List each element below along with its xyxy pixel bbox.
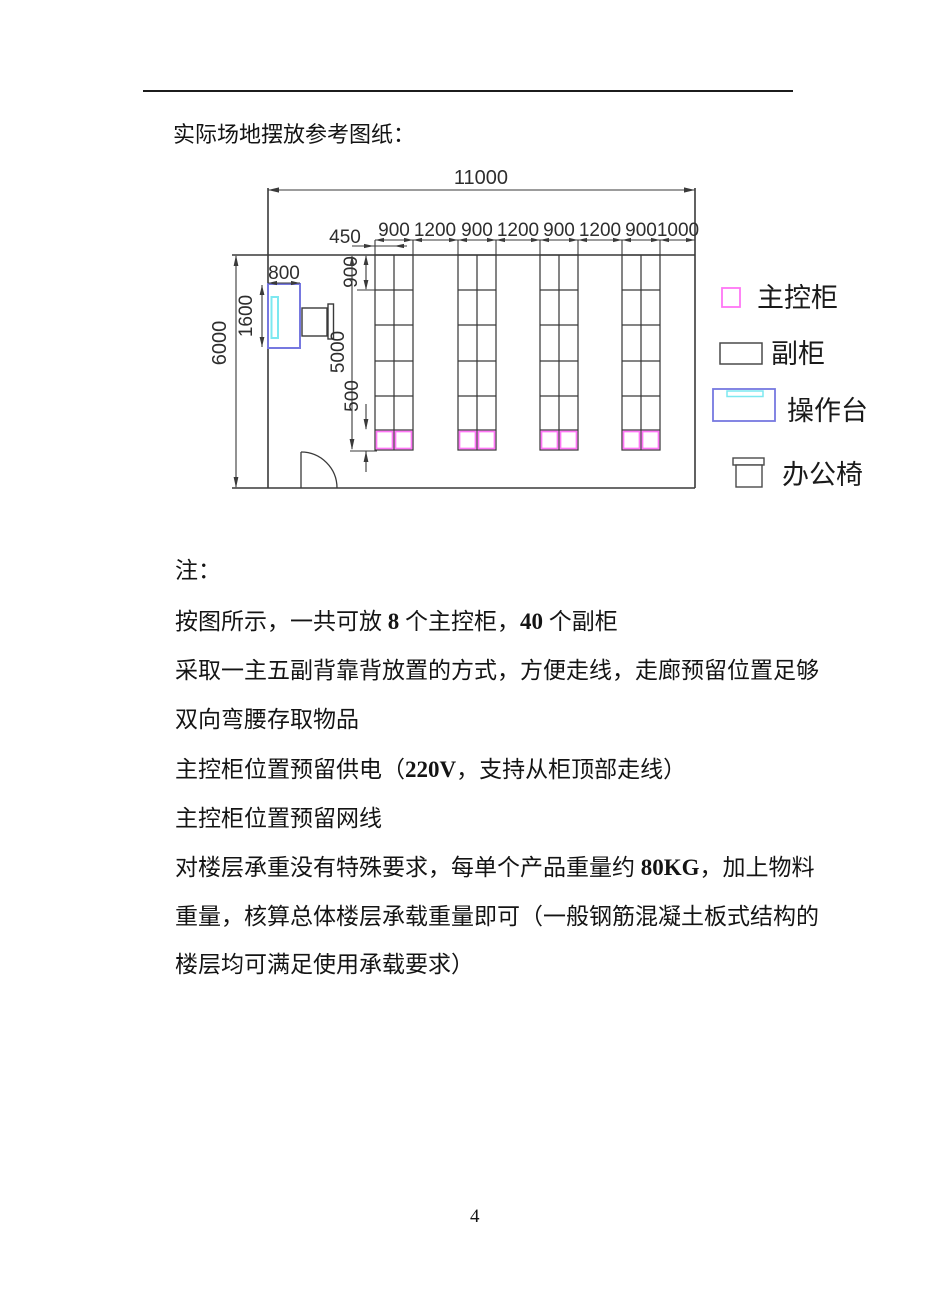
console-screen bbox=[272, 297, 279, 338]
svg-text:500: 500 bbox=[342, 380, 363, 412]
note-line-2: 采取一主五副背靠背放置的方式，方便走线，走廊预留位置足够 bbox=[175, 658, 819, 684]
legend: 主控柜 副柜 操作台 办公椅 bbox=[713, 283, 868, 490]
legend-item-chair: 办公椅 bbox=[733, 458, 863, 490]
note-line-1: 按图所示，一共可放 8 个主控柜，40 个副柜 bbox=[175, 609, 618, 635]
legend-label-console: 操作台 bbox=[787, 396, 868, 426]
note-line-7: 重量，核算总体楼层承载重量即可（一般钢筋混凝土板式结构的 bbox=[175, 904, 819, 930]
rack-column-4 bbox=[622, 240, 660, 450]
svg-text:1600: 1600 bbox=[236, 295, 257, 337]
legend-label-chair: 办公椅 bbox=[782, 460, 863, 490]
dim-overall-width: 11000 bbox=[268, 167, 695, 193]
aux-cabinet-swatch bbox=[720, 343, 762, 364]
note-line-6: 对楼层承重没有特殊要求，每单个产品重量约 80KG，加上物料 bbox=[175, 855, 815, 881]
dim-desk-length: 1600 bbox=[236, 285, 264, 347]
svg-text:5000: 5000 bbox=[328, 331, 349, 373]
dim-room-depth: 6000 bbox=[209, 255, 238, 488]
document-page: 实际场地摆放参考图纸： bbox=[0, 0, 930, 1316]
svg-text:1000: 1000 bbox=[657, 220, 699, 241]
chair-swatch-seat bbox=[736, 465, 762, 487]
dim-main-cabinet-row: 500 bbox=[342, 380, 377, 472]
legend-item-aux-cabinet: 副柜 bbox=[720, 339, 825, 369]
note-line-8: 楼层均可满足使用承载要求） bbox=[175, 952, 474, 978]
dim-first-rack-row: 900 bbox=[341, 255, 375, 290]
notes-heading: 注： bbox=[175, 558, 221, 584]
svg-text:450: 450 bbox=[329, 227, 361, 248]
main-cabinet-swatch bbox=[722, 288, 740, 307]
chair-swatch-back bbox=[733, 458, 764, 465]
operator-console bbox=[268, 284, 300, 348]
svg-text:900: 900 bbox=[543, 220, 575, 241]
note-line-5: 主控柜位置预留网线 bbox=[175, 806, 382, 832]
svg-text:900: 900 bbox=[378, 220, 410, 241]
dim-desk-width: 800 bbox=[268, 263, 300, 285]
legend-label-main-cabinet: 主控柜 bbox=[757, 283, 838, 313]
svg-text:800: 800 bbox=[268, 263, 300, 284]
svg-text:900: 900 bbox=[625, 220, 657, 241]
legend-label-aux-cabinet: 副柜 bbox=[771, 339, 825, 369]
legend-item-main-cabinet: 主控柜 bbox=[722, 283, 838, 313]
svg-text:11000: 11000 bbox=[454, 167, 508, 189]
console-screen-swatch bbox=[727, 391, 763, 397]
svg-text:1200: 1200 bbox=[497, 220, 539, 241]
svg-text:900: 900 bbox=[461, 220, 493, 241]
door-swing bbox=[301, 452, 337, 488]
floor-plan-diagram: 11000 900 1200 900 1200 900 1200 900 100… bbox=[0, 0, 930, 540]
notes-heading-text: 注： bbox=[175, 558, 221, 583]
svg-text:1200: 1200 bbox=[414, 220, 456, 241]
rack-column-3 bbox=[540, 240, 578, 450]
rack-column-1 bbox=[375, 240, 413, 450]
legend-item-console: 操作台 bbox=[713, 389, 868, 426]
note-line-3: 双向弯腰存取物品 bbox=[175, 707, 359, 733]
rack-column-2 bbox=[458, 240, 496, 450]
note-line-4: 主控柜位置预留供电（220V，支持从柜顶部走线） bbox=[175, 757, 686, 783]
dim-top-chain: 900 1200 900 1200 900 1200 900 1000 bbox=[375, 220, 699, 242]
svg-text:6000: 6000 bbox=[209, 321, 231, 366]
page-number: 4 bbox=[470, 1206, 480, 1228]
svg-text:1200: 1200 bbox=[579, 220, 621, 241]
